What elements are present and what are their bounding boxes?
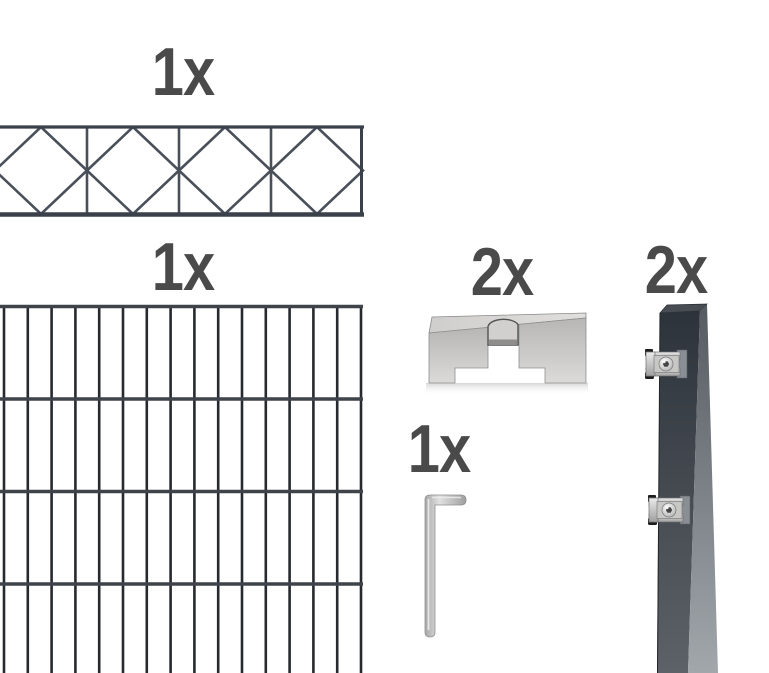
decor-diamond (179, 127, 271, 214)
product-image: 1x 1x 2x 1x 2x (0, 0, 769, 673)
decor-diamond (0, 127, 87, 214)
bracket-right-block (519, 318, 586, 383)
fence-post (640, 300, 725, 673)
decorative-panel-drawing (0, 112, 366, 222)
bracket-left-block (429, 327, 488, 383)
post-clamp-lower (648, 495, 690, 525)
allen-key (420, 490, 480, 645)
qty-label-allen-key: 1x (408, 415, 471, 483)
allen-key-body (425, 495, 466, 637)
decorative-panel (0, 112, 366, 222)
bracket-arch-floor (489, 340, 517, 346)
qty-label-post: 2x (645, 236, 708, 304)
bracket-shadow (426, 383, 588, 395)
post-clamp-upper (645, 349, 687, 379)
qty-label-bracket: 2x (471, 238, 534, 306)
fence-post-drawing (640, 300, 725, 673)
qty-label-mesh-panel: 1x (152, 233, 215, 301)
cover-bracket-drawing (426, 308, 592, 398)
decor-diamond (271, 127, 363, 214)
allen-key-drawing (420, 490, 480, 645)
mesh-panel (0, 303, 366, 673)
decor-diamond (87, 127, 179, 214)
cover-bracket (426, 308, 592, 398)
qty-label-decor-panel: 1x (152, 38, 215, 106)
mesh-panel-drawing (0, 303, 366, 673)
